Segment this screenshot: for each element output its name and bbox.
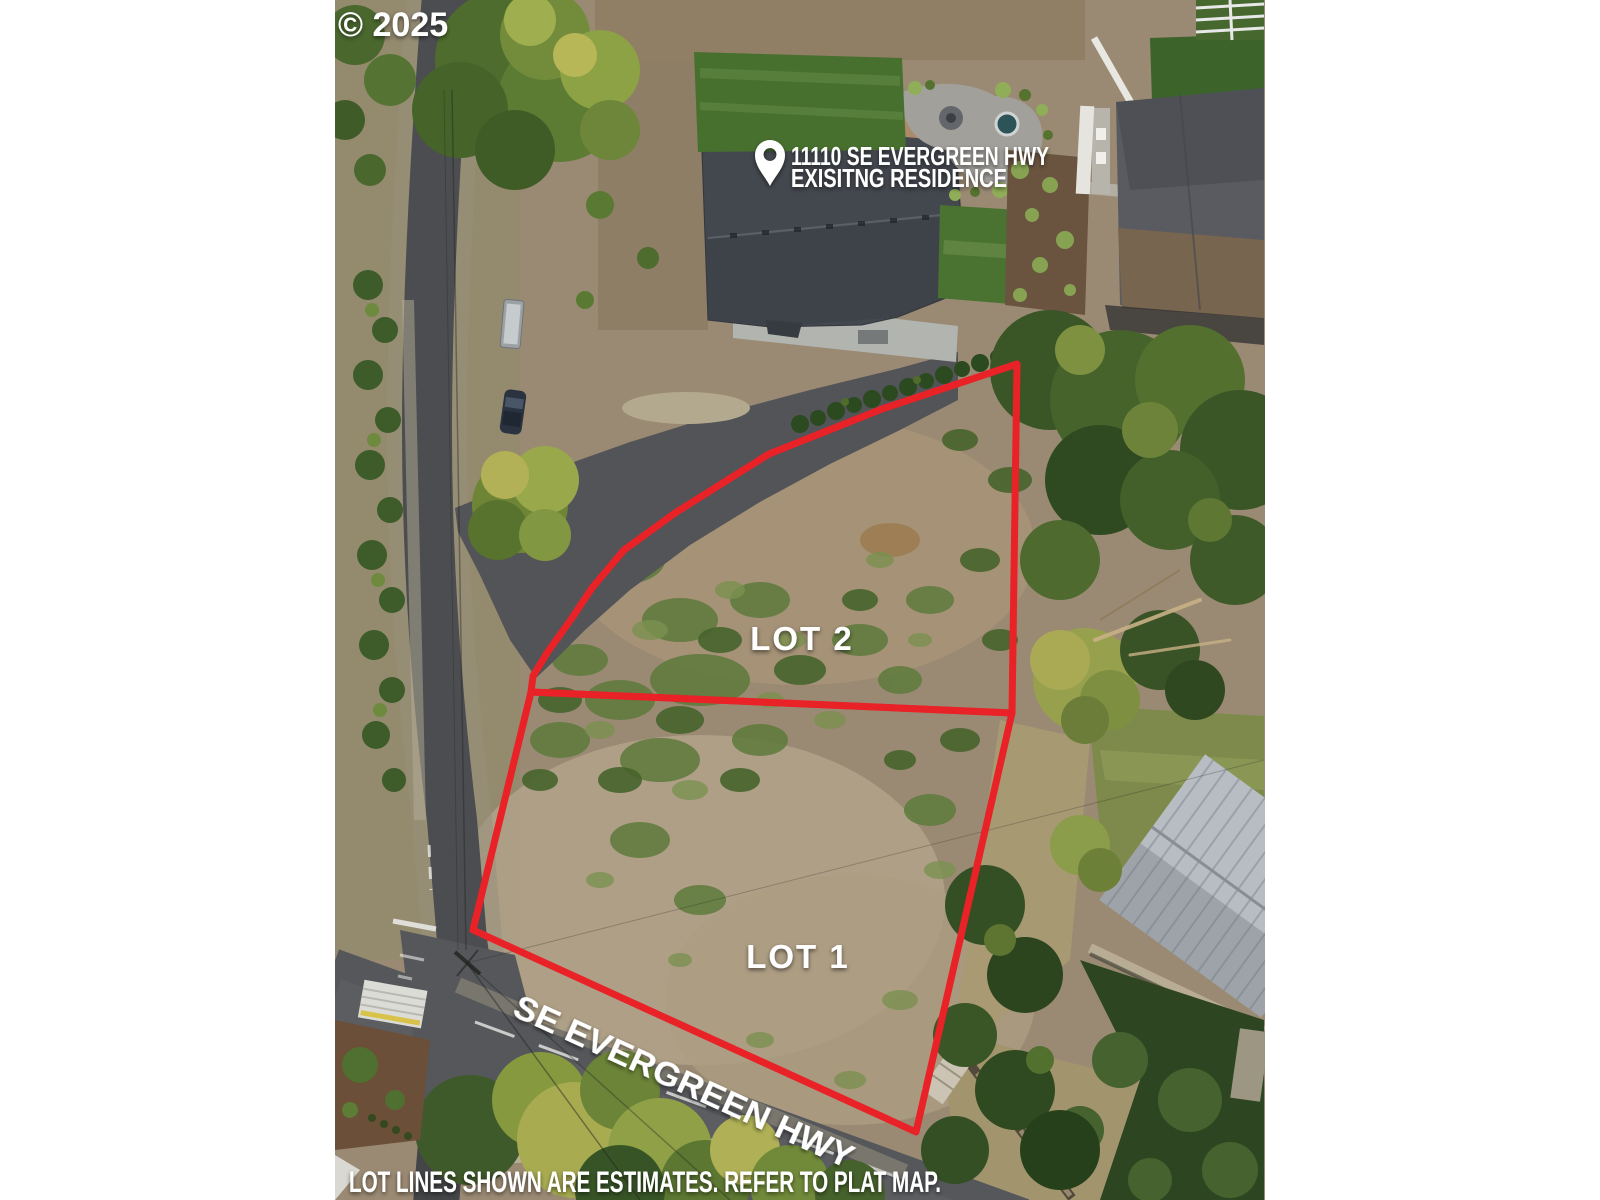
- lot-1-label: LOT 1: [746, 938, 850, 975]
- copyright-watermark: © 2025: [338, 6, 448, 44]
- lot-2-label: LOT 2: [750, 620, 854, 657]
- utility-trailer: [500, 299, 524, 349]
- driveway-tree: [468, 446, 579, 561]
- address-line-2: EXISITNG RESIDENCE: [791, 163, 1007, 193]
- address-callout: 11110 SE EVERGREEN HWY EXISITNG RESIDENC…: [755, 140, 1049, 193]
- aerial-photo: © 2025 11110 SE EVERGREEN HWY EXISITNG R…: [0, 0, 1600, 1200]
- disclaimer-text: LOT LINES SHOWN ARE ESTIMATES. REFER TO …: [349, 1166, 941, 1199]
